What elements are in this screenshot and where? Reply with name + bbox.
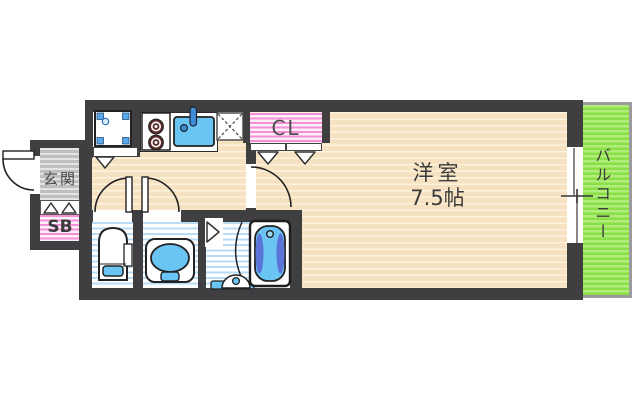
balcony-rail-bottom [583,295,632,298]
wall-bottom [79,288,583,300]
wall-top [85,100,583,112]
balcony-window-opening [567,147,583,243]
entrance-label: 玄関 [40,170,80,188]
kitchen-counter [140,112,218,152]
laundry-alcove-interior [93,112,132,147]
wall-closet-left [243,112,250,143]
floor-plan: 洋室 7.5帖 玄関 SB CL バルコニー [0,0,640,400]
main-room-label: 洋室 7.5帖 [375,161,500,211]
shoe-box-label: SB [40,217,80,237]
entrance-doorway [30,156,40,194]
wall-shoebox-bottom [30,241,92,250]
bathroom-floor [206,222,290,288]
closet-label: CL [250,116,322,140]
laundry-alcove-opening [93,147,138,157]
main-room-name: 洋室 [375,161,500,186]
wall-bathroom-right [290,210,302,288]
wall-washroom-bath-divider [198,222,206,288]
balcony-label: バルコニー [592,147,611,267]
toilet-floor [92,222,133,288]
shoebox-door-track [40,200,80,215]
washroom-doorway [143,210,181,222]
wall-closet-right [322,112,330,143]
balcony-rail-right [629,102,632,298]
wall-toilet-divider [133,222,143,288]
toilet-doorway [93,210,132,222]
main-room-size: 7.5帖 [375,186,500,211]
washroom-floor [143,222,198,288]
wall-entrance-divider [79,148,92,300]
balcony-rail-top [583,102,632,105]
closet-track-divider [285,144,287,150]
main-room-doorway [246,164,256,208]
